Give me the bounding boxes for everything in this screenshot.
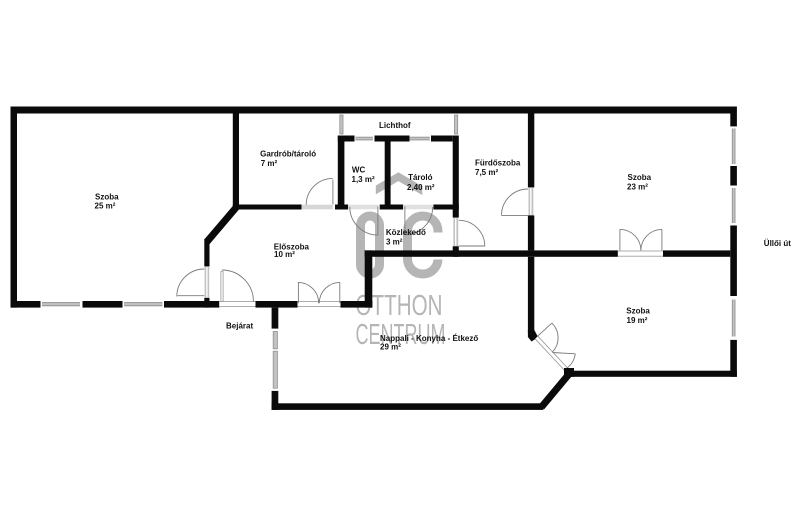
svg-text:1,3 m²: 1,3 m² xyxy=(352,175,375,184)
svg-text:Szoba: Szoba xyxy=(626,307,650,316)
svg-text:25 m²: 25 m² xyxy=(95,201,116,210)
svg-text:2,40 m²: 2,40 m² xyxy=(407,183,435,192)
svg-text:23 m²: 23 m² xyxy=(627,182,648,191)
svg-text:10 m²: 10 m² xyxy=(274,250,295,259)
svg-text:19 m²: 19 m² xyxy=(627,316,648,325)
svg-text:WC: WC xyxy=(352,166,366,175)
svg-text:7,5 m²: 7,5 m² xyxy=(475,168,498,177)
svg-text:3 m²: 3 m² xyxy=(386,237,403,246)
svg-text:29 m²: 29 m² xyxy=(380,342,401,351)
svg-text:Szoba: Szoba xyxy=(628,173,652,182)
svg-text:Fürdőszoba: Fürdőszoba xyxy=(475,158,521,167)
svg-text:Üllői út: Üllői út xyxy=(764,239,791,248)
svg-text:Szoba: Szoba xyxy=(95,193,119,202)
svg-text:Tároló: Tároló xyxy=(408,173,433,182)
svg-text:Közlekedő: Közlekedő xyxy=(386,228,426,237)
svg-text:7 m²: 7 m² xyxy=(261,159,278,168)
svg-text:Lichthof: Lichthof xyxy=(379,121,411,130)
svg-text:Bejárat: Bejárat xyxy=(226,322,253,331)
svg-text:Gardrób/tároló: Gardrób/tároló xyxy=(260,150,316,159)
